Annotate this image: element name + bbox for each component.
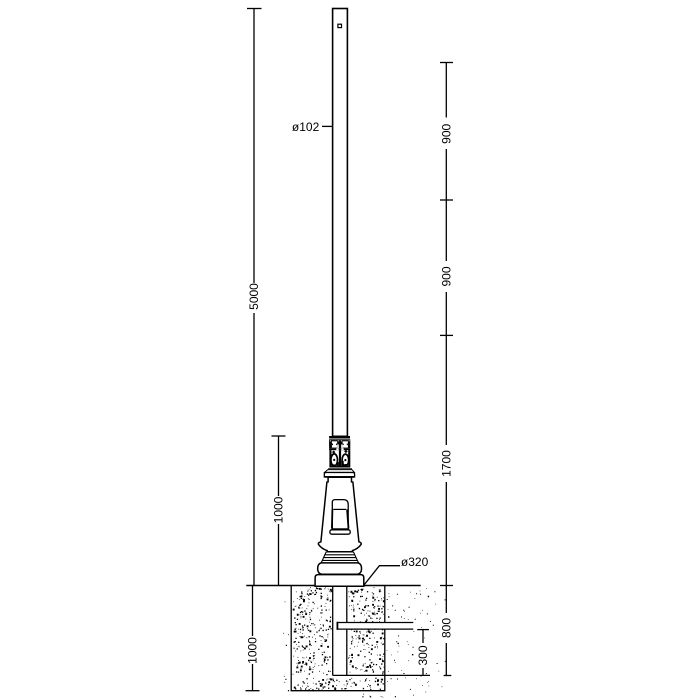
svg-text:1000: 1000 bbox=[246, 637, 260, 664]
svg-text:300: 300 bbox=[416, 645, 430, 665]
svg-text:ø102: ø102 bbox=[292, 120, 320, 134]
svg-text:5000: 5000 bbox=[247, 283, 261, 310]
svg-text:ø320: ø320 bbox=[401, 555, 429, 569]
svg-text:1700: 1700 bbox=[440, 450, 454, 477]
svg-text:900: 900 bbox=[440, 266, 454, 286]
svg-text:1000: 1000 bbox=[272, 496, 286, 523]
svg-text:900: 900 bbox=[440, 123, 454, 143]
svg-text:800: 800 bbox=[440, 618, 454, 638]
